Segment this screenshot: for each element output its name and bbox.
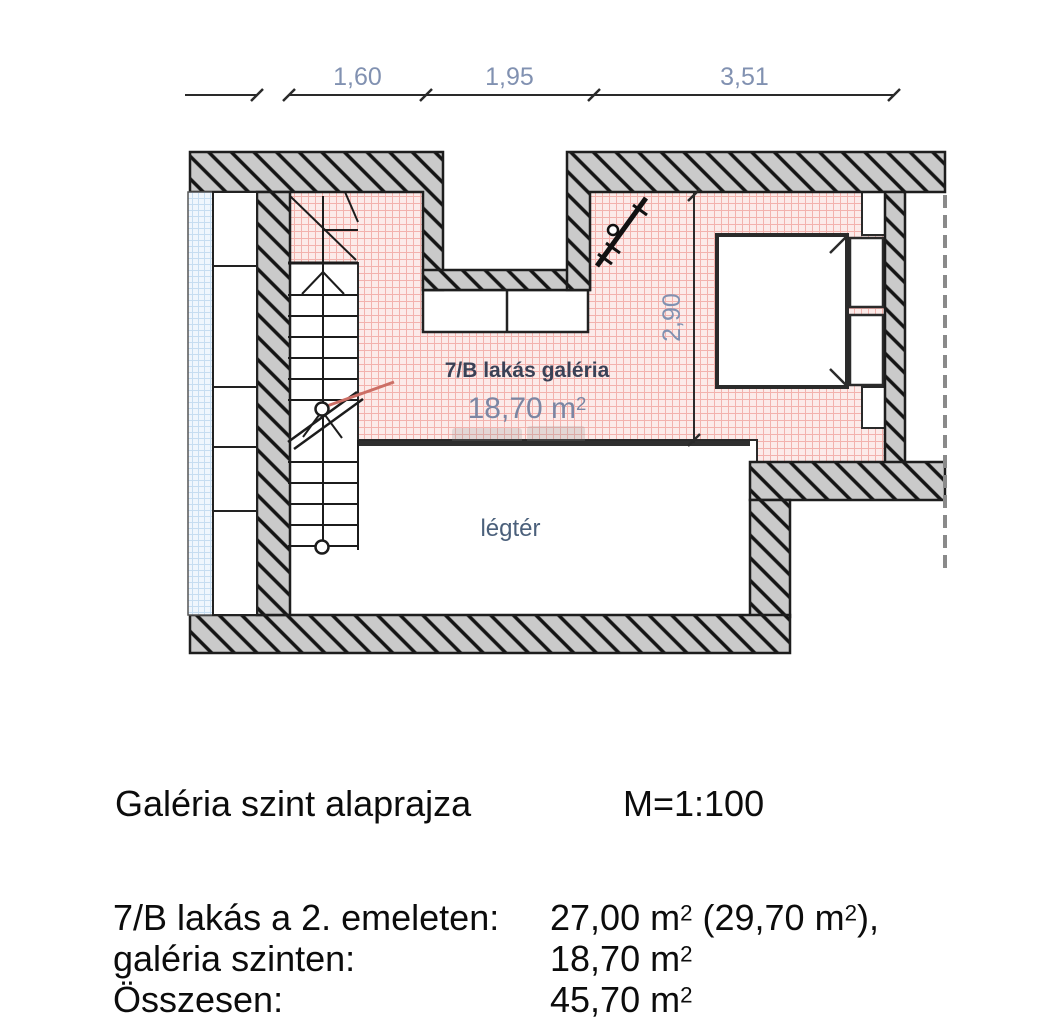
dimension-label-2: 1,95	[452, 63, 567, 92]
area-row-value: 18,70 m2	[550, 938, 693, 979]
area-row-label: 7/B lakás a 2. emeleten:	[113, 897, 550, 938]
gallery-area-label: 18,70 m2	[417, 392, 637, 426]
floor-plan-drawing	[0, 0, 1055, 1024]
drawing-title: Galéria szint alaprajza	[115, 783, 471, 825]
wall-right	[885, 192, 905, 463]
cabinet	[423, 290, 588, 332]
neighbour-strip	[188, 192, 213, 615]
dimension-label-3: 3,51	[687, 63, 802, 92]
area-row-label: galéria szinten:	[113, 938, 550, 979]
wall-step-down	[750, 500, 790, 617]
area-summary-table: 7/B lakás a 2. emeleten: 27,00 m2 (29,70…	[113, 897, 933, 1020]
sectioned-pier	[213, 192, 257, 615]
wall-notch-bottom	[423, 270, 590, 290]
area-row-label: Összesen:	[113, 979, 550, 1020]
table-row: Összesen: 45,70 m2	[113, 979, 933, 1020]
drawing-scale: M=1:100	[623, 783, 764, 825]
nightstand	[850, 315, 883, 385]
dimension-label-1: 1,60	[300, 63, 415, 92]
area-row-value: 27,00 m2 (29,70 m2),	[550, 897, 879, 938]
dimension-label-vertical: 2,90	[658, 260, 687, 375]
area-row-value: 45,70 m2	[550, 979, 693, 1020]
table-row: galéria szinten: 18,70 m2	[113, 938, 933, 979]
nightstand	[850, 238, 883, 307]
wall-stair-left	[257, 192, 290, 615]
floor-plan-sheet: 1,60 1,95 3,51 2,90 7/B lakás galéria 18…	[0, 0, 1055, 1024]
gallery-room-label: 7/B lakás galéria	[417, 359, 637, 383]
wall-right-lower	[750, 462, 945, 500]
table-row: 7/B lakás a 2. emeleten: 27,00 m2 (29,70…	[113, 897, 933, 938]
void-label: légtér	[448, 515, 573, 543]
wall-bottom	[190, 615, 790, 653]
